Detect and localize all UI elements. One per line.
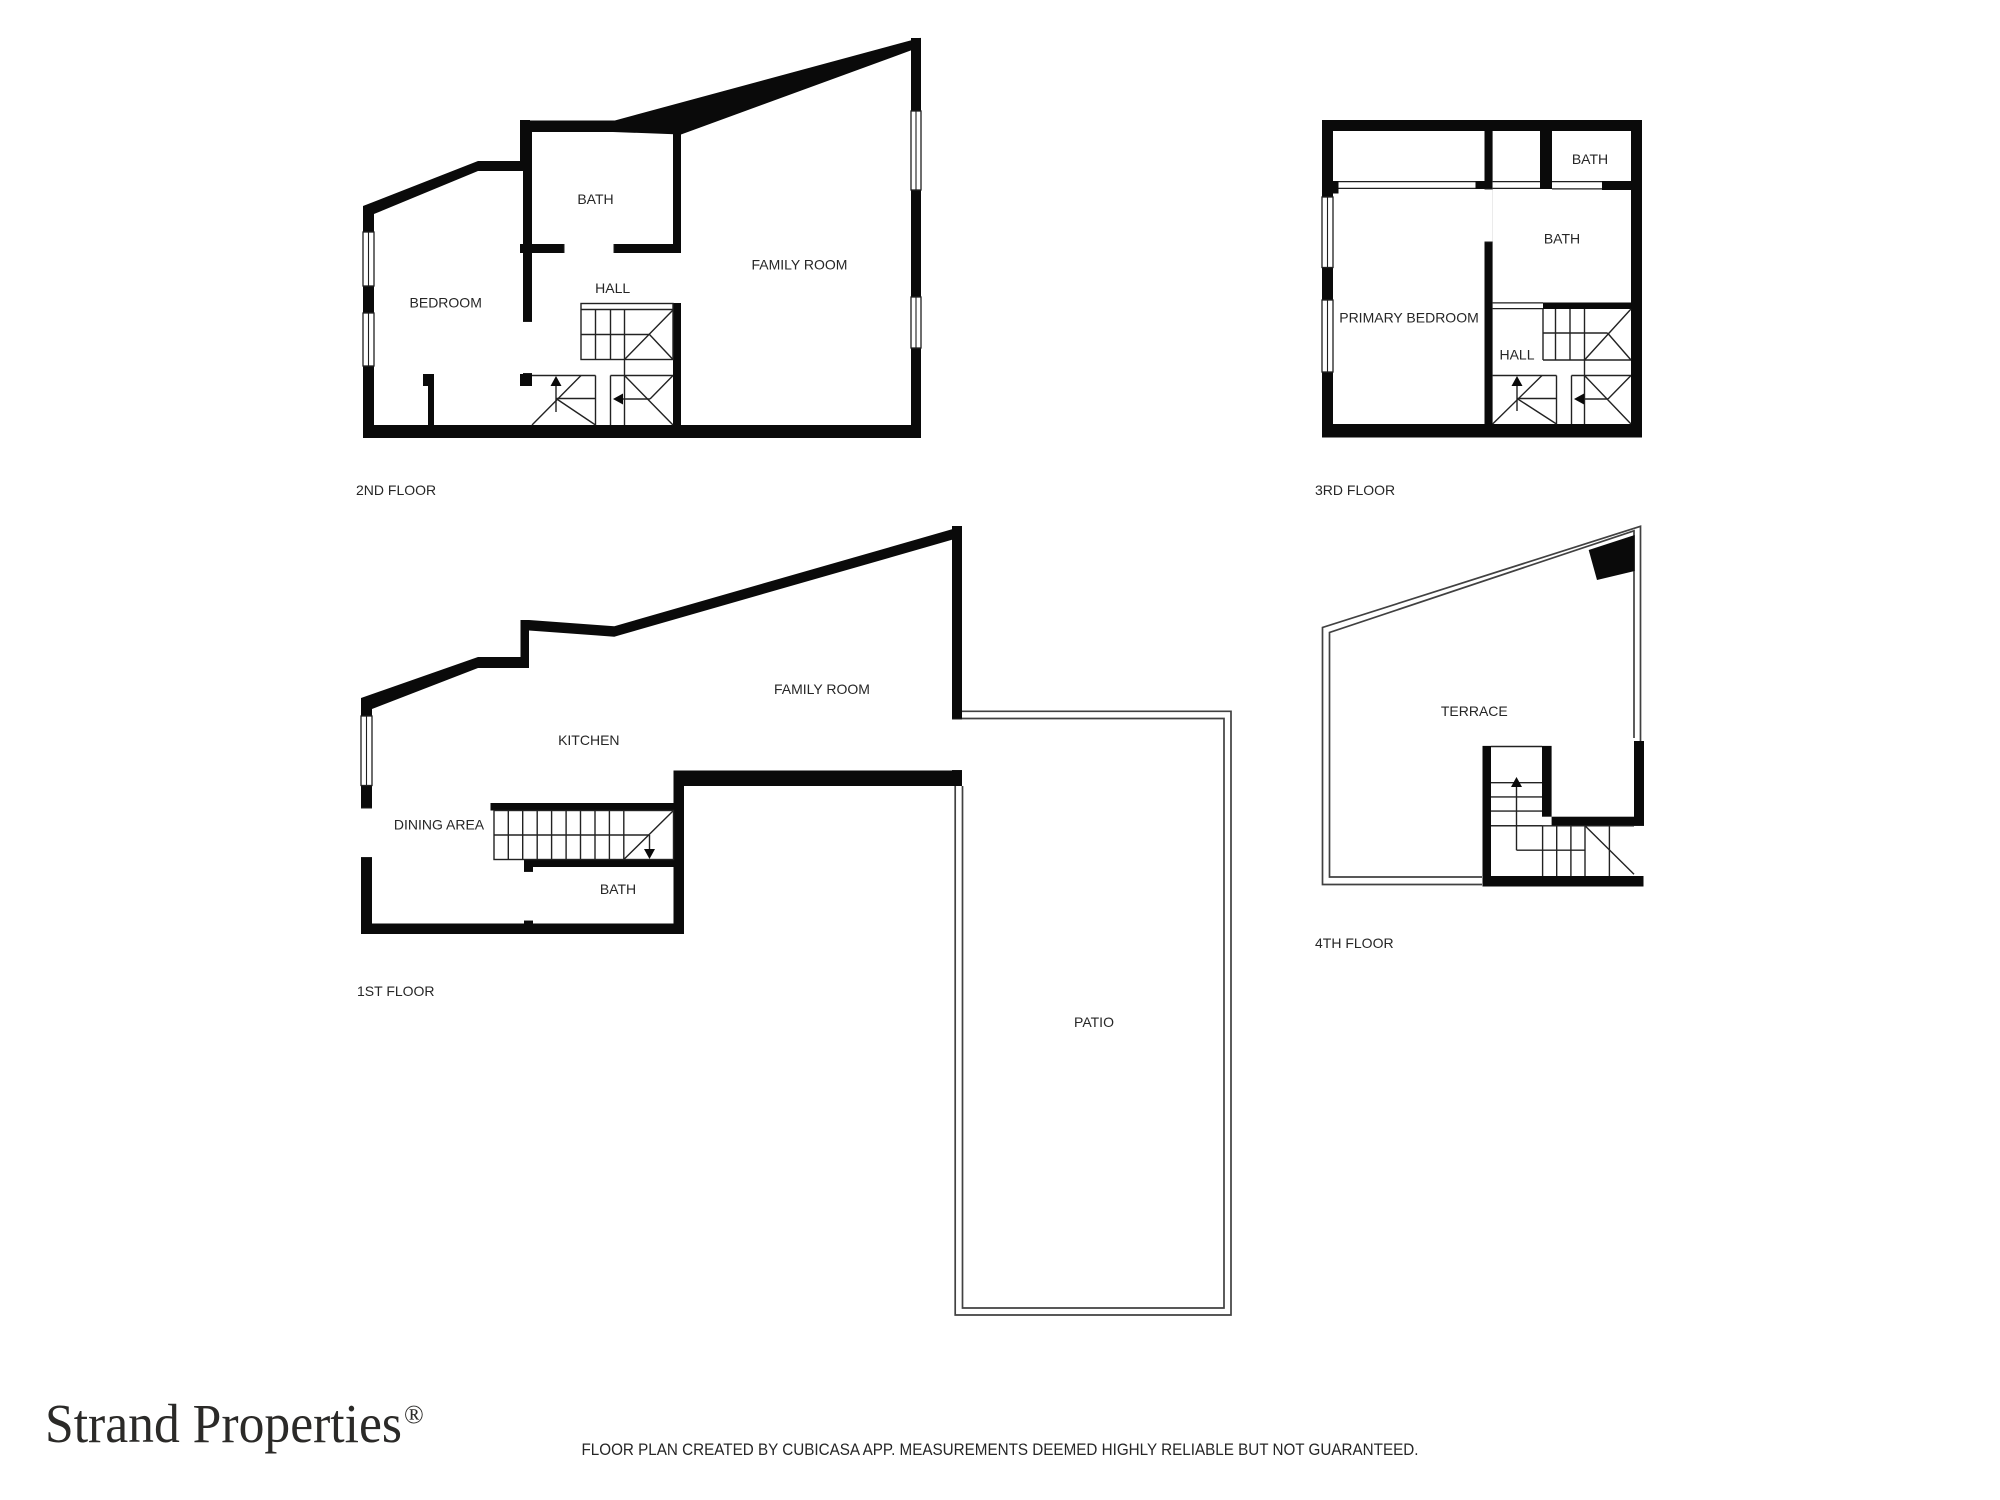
svg-text:4TH FLOOR: 4TH FLOOR (1315, 935, 1394, 951)
svg-text:DINING AREA: DINING AREA (394, 817, 485, 833)
svg-text:BEDROOM: BEDROOM (410, 295, 482, 311)
svg-text:®: ® (404, 1400, 424, 1429)
svg-text:BATH: BATH (1544, 231, 1580, 247)
svg-text:Strand Properties: Strand Properties (45, 1393, 402, 1454)
svg-text:TERRACE: TERRACE (1441, 703, 1508, 719)
svg-text:BATH: BATH (577, 191, 613, 207)
svg-text:2ND FLOOR: 2ND FLOOR (356, 482, 436, 498)
svg-text:KITCHEN: KITCHEN (558, 732, 619, 748)
svg-text:BATH: BATH (1572, 151, 1608, 167)
svg-text:HALL: HALL (1499, 347, 1534, 363)
svg-text:3RD FLOOR: 3RD FLOOR (1315, 482, 1395, 498)
svg-text:FLOOR PLAN CREATED BY CUBICASA: FLOOR PLAN CREATED BY CUBICASA APP. MEAS… (582, 1441, 1419, 1459)
svg-text:BATH: BATH (600, 881, 636, 897)
svg-text:FAMILY ROOM: FAMILY ROOM (752, 257, 848, 273)
svg-text:PRIMARY BEDROOM: PRIMARY BEDROOM (1339, 310, 1479, 326)
svg-text:1ST FLOOR: 1ST FLOOR (357, 983, 435, 999)
svg-text:HALL: HALL (595, 280, 630, 296)
svg-text:FAMILY ROOM: FAMILY ROOM (774, 681, 870, 697)
svg-text:PATIO: PATIO (1074, 1014, 1114, 1030)
